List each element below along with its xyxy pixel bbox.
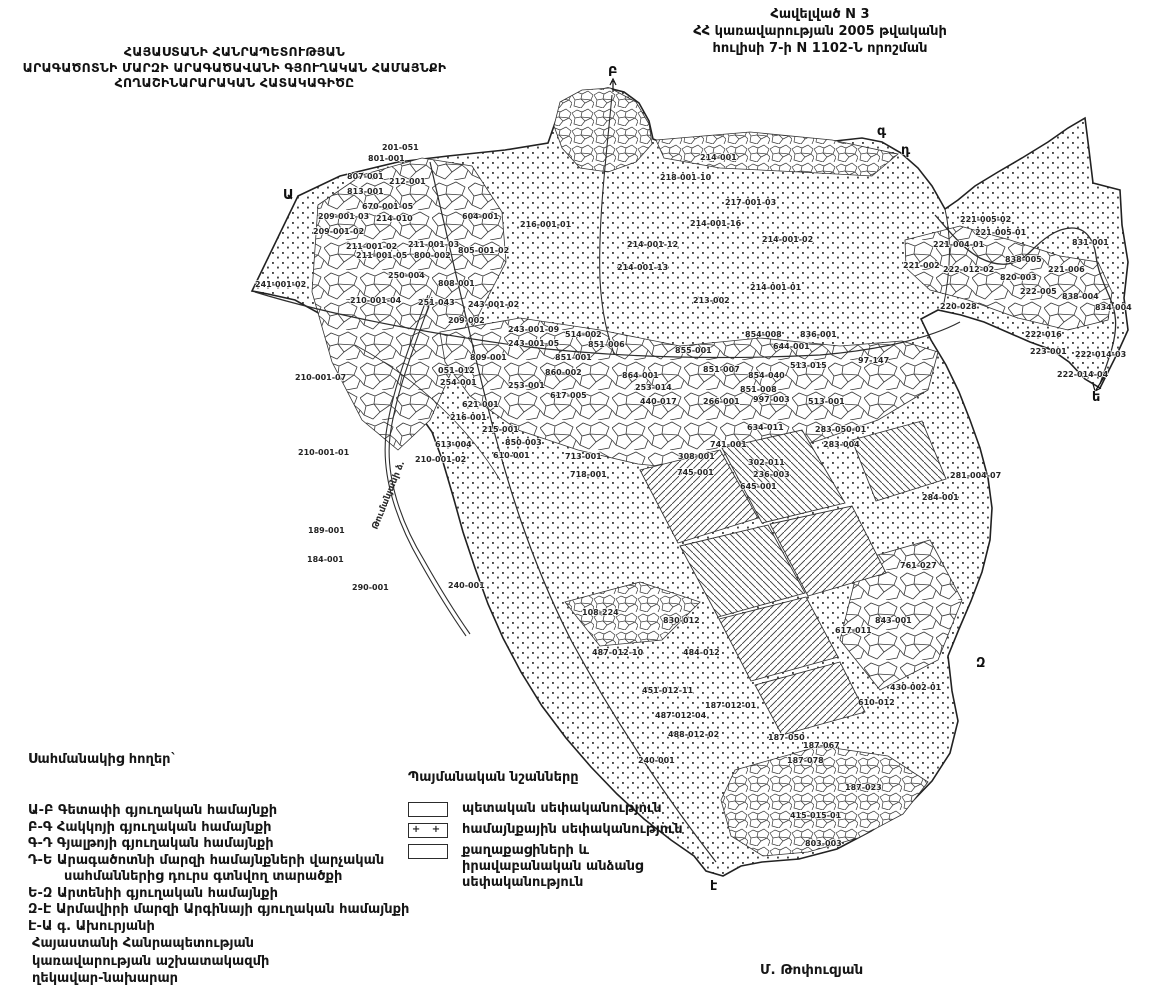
signatory-title-block: Հայաստանի Հանրապետության կառավարության ա… xyxy=(32,935,269,988)
parcel-label: 266-001 xyxy=(703,397,740,406)
parcel-label: 645-001 xyxy=(740,482,777,491)
legend-item: պետական սեփականություն xyxy=(408,801,738,817)
legend-item-label: քաղաքացիների և իրավաբանական անձանց սեփակ… xyxy=(462,843,712,891)
parcel-label: 851-001 xyxy=(555,353,592,362)
parcel-label: 415-015-01 xyxy=(790,811,842,820)
parcel-label: 834-004 xyxy=(1095,303,1132,312)
boundary-letter: Ա xyxy=(283,188,294,203)
parcel-label: 803-003 xyxy=(805,839,842,848)
legend-item: + + համայնքային սեփականություն xyxy=(408,822,738,838)
parcel-label: 613-004 xyxy=(435,440,472,449)
adjacent-land-item: Դ-Ե Արագածոտնի մարզի համայնքների վարչակա… xyxy=(28,853,416,886)
parcel-label: 617-005 xyxy=(550,391,587,400)
adjacent-lands-title: Սահմանակից հողեր` xyxy=(28,752,398,767)
parcel-label: 212-001 xyxy=(389,177,426,186)
adjacent-land-item: Ա-Բ Գետափի գյուղական համայնքի xyxy=(28,803,416,820)
parcel-label: 670-001-05 xyxy=(362,202,414,211)
parcel-label: 222-014-03 xyxy=(1075,350,1126,359)
parcel-label: 222-012-02 xyxy=(943,265,994,274)
parcel-label: 745-001 xyxy=(677,468,714,477)
parcel-label: 610-001 xyxy=(493,451,530,460)
parcel-label: 209-001-03 xyxy=(318,212,369,221)
boundary-letter: Զ xyxy=(976,656,986,671)
parcel-label: 051-012 xyxy=(438,366,475,375)
boundary-letter: ե xyxy=(1092,390,1100,405)
parcel-label: 211-001-03 xyxy=(408,240,459,249)
parcel-label: 97-147 xyxy=(858,356,889,365)
signatory-line2: կառավարության աշխատակազմի xyxy=(32,953,269,971)
parcel-label: 184-001 xyxy=(307,555,344,564)
appendix-header: Հավելված N 3 ՀՀ կառավարության 2005 թվակա… xyxy=(600,6,1040,57)
parcel-label: 488-012-02 xyxy=(668,730,719,739)
parcel-label: 221-006 xyxy=(1048,265,1085,274)
parcel-label: 209-002 xyxy=(448,316,485,325)
parcel-label: 440-017 xyxy=(640,397,677,406)
adjacent-lands-list: Սահմանակից հողեր` Ա-Բ Գետափի գյուղական հ… xyxy=(28,752,398,935)
government-decision-line1: ՀՀ կառավարության 2005 թվականի xyxy=(600,23,1040,40)
parcel-label: 800-002 xyxy=(414,251,451,260)
adjacent-land-item: Գ-Դ Գյալթոյի գյուղական համայնքի xyxy=(28,836,416,853)
parcel-label: 713-001 xyxy=(565,452,602,461)
parcel-label: 213-002 xyxy=(693,296,730,305)
parcel-label: 209-001-02 xyxy=(313,227,364,236)
parcel-label: 215-001 xyxy=(482,425,519,434)
parcel-label: 604-001 xyxy=(462,212,499,221)
parcel-label: 451-012-11 xyxy=(642,686,694,695)
map-title-line2: ԱՐԱԳԱԾՈՏՆԻ ՄԱՐԶԻ ԱՐԱԳԱԾԱՎԱՆԻ ԳՅՈՒՂԱԿԱՆ Հ… xyxy=(12,60,457,76)
private-ownership-swatch xyxy=(408,844,448,859)
appendix-number: Հավելված N 3 xyxy=(600,6,1040,23)
parcel-label: 187-078 xyxy=(787,756,824,765)
boundary-letter: գ xyxy=(877,124,887,139)
parcel-label: 854-040 xyxy=(748,371,785,380)
adjacent-land-item: Է-Ա գ. Ախուրյանի xyxy=(28,919,416,936)
parcel-label: 513-015 xyxy=(790,361,827,370)
parcel-label: 241-001-02 xyxy=(255,280,306,289)
parcel-label: 210-001-04 xyxy=(350,296,402,305)
adjacent-land-item: Զ-Է Արմավիրի մարզի Արգինայի գյուղական հա… xyxy=(28,902,416,919)
parcel-label: 430-002-01 xyxy=(890,683,942,692)
legend-item: քաղաքացիների և իրավաբանական անձանց սեփակ… xyxy=(408,843,738,891)
state-ownership-swatch xyxy=(408,802,448,817)
parcel-label: 855-001 xyxy=(675,346,712,355)
parcel-label: 251-043 xyxy=(418,298,455,307)
parcel-label: 211-001-05 xyxy=(356,251,408,260)
parcel-label: 838-005 xyxy=(1005,255,1042,264)
parcel-label: 808-001 xyxy=(438,279,475,288)
parcel-label: 187-067 xyxy=(803,741,840,750)
parcel-label: 201-051 xyxy=(382,143,419,152)
parcel-label: 741-001 xyxy=(710,440,747,449)
parcel-label: 283-050-01 xyxy=(815,425,867,434)
parcel-label: 218-001-10 xyxy=(660,173,712,182)
parcel-label: 221-005-01 xyxy=(975,228,1027,237)
parcel-label: 187-050 xyxy=(768,733,805,742)
parcel-label: 210-001-02 xyxy=(415,455,466,464)
parcel-label: 843-001 xyxy=(875,616,912,625)
parcel-label: 308-001 xyxy=(678,452,715,461)
parcel-label: 243-001-02 xyxy=(468,300,519,309)
adjacent-land-item: Բ-Գ Հակկոյի գյուղական համայնքի xyxy=(28,820,416,837)
map-title: ՀԱՅԱՍՏԱՆԻ ՀԱՆՐԱՊԵՏՈՒԹՅԱՆ ԱՐԱԳԱԾՈՏՆԻ ՄԱՐԶ… xyxy=(12,44,457,91)
parcel-label: 189-001 xyxy=(308,526,345,535)
parcel-label: 236-003 xyxy=(753,470,790,479)
parcel-label: 836-001 xyxy=(800,330,837,339)
parcel-label: 250-004 xyxy=(388,271,425,280)
parcel-label: 290-001 xyxy=(352,583,389,592)
parcel-label: 854-008 xyxy=(745,330,782,339)
parcel-label: 487-012-10 xyxy=(592,648,644,657)
parcel-label: 997-003 xyxy=(753,395,790,404)
parcel-label: 220-028 xyxy=(940,302,977,311)
conventional-signs-legend: Պայմանական նշանները պետական սեփականությո… xyxy=(408,770,738,896)
parcel-label: 243-001-09 xyxy=(508,325,560,334)
legend-title: Պայմանական նշանները xyxy=(408,770,738,785)
parcel-label: 644-001 xyxy=(773,342,810,351)
parcel-label: 240-001 xyxy=(638,756,675,765)
parcel-label: 214-001-12 xyxy=(627,240,678,249)
parcel-label: 718-001 xyxy=(570,470,607,479)
parcel-label: 214-010 xyxy=(376,214,413,223)
parcel-label: 221-002 xyxy=(903,261,940,270)
parcel-label: 761-027 xyxy=(900,561,937,570)
parcel-label: 210-001-07 xyxy=(295,373,346,382)
parcel-label: 187-023 xyxy=(845,783,882,792)
parcel-label: 838-004 xyxy=(1062,292,1099,301)
parcel-label: 513-001 xyxy=(808,397,845,406)
parcel-label: 253-014 xyxy=(635,383,672,392)
parcel-label: 284-001 xyxy=(922,493,959,502)
parcel-label: 851-006 xyxy=(588,340,625,349)
parcel-label: 514-002 xyxy=(565,330,602,339)
parcel-label: 214-001-01 xyxy=(750,283,802,292)
parcel-label: 820-003 xyxy=(1000,273,1037,282)
parcel-label: 222-005 xyxy=(1020,287,1057,296)
parcel-label: 864-001 xyxy=(622,371,659,380)
parcel-label: 860-002 xyxy=(545,368,582,377)
scanned-map-page: Թումանյանի ձ. 201-051801-001807-001212-0… xyxy=(0,0,1159,998)
map-title-line3: ՀՈՂԱՇԻՆԱՐԱՐԱԿԱՆ ՀԱՏԱԿԱԳԻԾԸ xyxy=(12,75,457,91)
parcel-label: 851-007 xyxy=(703,365,740,374)
parcel-label: 254-001 xyxy=(440,378,477,387)
boundary-letter: դ xyxy=(901,143,911,158)
parcel-label: 484-012 xyxy=(683,648,720,657)
parcel-label: 617-011 xyxy=(835,626,872,635)
map-title-line1: ՀԱՅԱՍՏԱՆԻ ՀԱՆՐԱՊԵՏՈՒԹՅԱՆ xyxy=(12,44,457,60)
parcel-label: 621-001 xyxy=(462,400,499,409)
parcel-label: 809-001 xyxy=(470,353,507,362)
parcel-label: 283-004 xyxy=(823,440,860,449)
signatory-line1: Հայաստանի Հանրապետության xyxy=(32,935,269,953)
parcel-label: 210-001-01 xyxy=(298,448,350,457)
parcel-label: 216-001 xyxy=(450,413,487,422)
parcel-label: 240-001 xyxy=(448,581,485,590)
parcel-label: 223-001 xyxy=(1030,347,1067,356)
government-decision-line2: հուլիսի 7-ի N 1102-Ն որոշման xyxy=(600,40,1040,57)
parcel-label: 851-008 xyxy=(740,385,777,394)
parcel-label: 214-001 xyxy=(700,153,737,162)
parcel-label: 807-001 xyxy=(347,172,384,181)
parcel-label: 222-016 xyxy=(1025,330,1062,339)
parcel-label: 243-001-05 xyxy=(508,339,560,348)
parcel-label: 222-014-04 xyxy=(1057,370,1109,379)
parcel-label: 216-001-01 xyxy=(520,220,572,229)
legend-item-label: պետական սեփականություն xyxy=(462,801,662,817)
parcel-label: 830-012 xyxy=(663,616,700,625)
parcel-label: 831-001 xyxy=(1072,238,1109,247)
community-ownership-swatch: + + xyxy=(408,823,448,838)
boundary-letter: Բ xyxy=(608,65,617,80)
parcel-label: 610-012 xyxy=(858,698,895,707)
parcel-label: 214-001-16 xyxy=(690,219,742,228)
parcel-label: 214-001-02 xyxy=(762,235,813,244)
parcel-label: 214-001-13 xyxy=(617,263,668,272)
parcel-label: 108-224 xyxy=(582,608,619,617)
parcel-label: 281-004-07 xyxy=(950,471,1001,480)
adjacent-land-item: Ե-Զ Արտենիի գյուղական համայնքի xyxy=(28,886,416,903)
parcel-label: 187-012-01 xyxy=(705,701,757,710)
parcel-label: 211-001-02 xyxy=(346,242,397,251)
parcel-label: 221-005-02 xyxy=(960,215,1011,224)
parcel-label: 221-004-01 xyxy=(933,240,985,249)
parcel-label: 253-001 xyxy=(508,381,545,390)
legend-item-label: համայնքային սեփականություն xyxy=(462,822,683,838)
parcel-label: 801-001 xyxy=(368,154,405,163)
parcel-label: 217-001-03 xyxy=(725,198,776,207)
parcel-label: 302-011 xyxy=(748,458,785,467)
parcel-label: 805-001-02 xyxy=(458,246,509,255)
parcel-label: 487-012-04 xyxy=(655,711,707,720)
parcel-label: 850-003 xyxy=(505,438,542,447)
signatory-name: Մ. Թոփուզյան xyxy=(760,962,863,978)
signatory-line3: ղեկավար-նախարար xyxy=(32,970,269,988)
canal-label: Թումանյանի ձ. xyxy=(371,460,408,531)
parcel-label: 634-011 xyxy=(747,423,784,432)
parcel-label: 813-001 xyxy=(347,187,384,196)
